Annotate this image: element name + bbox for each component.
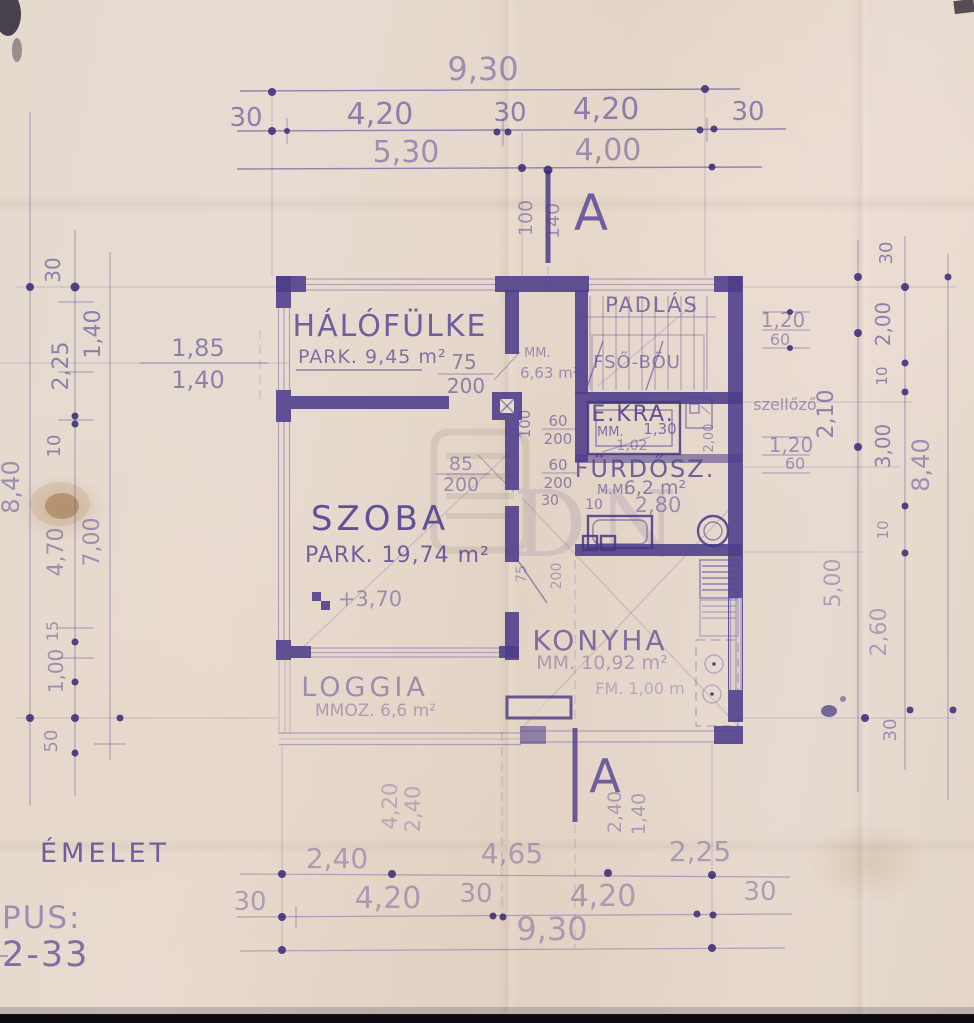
dim: 7,00 (80, 518, 105, 567)
dim: 2,25 (49, 342, 74, 391)
door-dim: 60 (548, 412, 567, 430)
section-top-dim-1: 100 (515, 200, 537, 236)
ekra-d2: 1,02 (616, 438, 647, 454)
top-dimension-chain: 9,30 30 4,20 30 4,20 30 5,30 4,00 (229, 50, 764, 170)
type-number: 2-33 (2, 935, 89, 975)
dim-30: 30 (541, 493, 559, 509)
dim: 30 (743, 877, 776, 907)
dim: 2,10 (814, 390, 839, 439)
water-heater (698, 516, 728, 546)
ekra-d1: 1,30 (643, 420, 676, 438)
door-dim: 85 (449, 453, 473, 475)
dim: 60 (770, 330, 790, 349)
scanned-floorplan-sheet: DN (0, 0, 974, 1023)
door-dim: 60 (548, 456, 567, 474)
ink-blot (821, 705, 837, 717)
dim: 4,70 (44, 528, 69, 577)
dim: 2,40 (401, 786, 425, 833)
dim: 30 (459, 879, 492, 909)
dim: 4,20 (570, 879, 637, 914)
dim: 2,40 (306, 842, 368, 875)
dim: 15 (43, 621, 62, 641)
section-mark-top: A 100 140 (515, 166, 610, 291)
hall-mm: MM. (524, 346, 551, 361)
dim: 2,60 (867, 608, 892, 657)
dimension-lines (26, 85, 957, 954)
szoba-level: +3,70 (338, 587, 402, 611)
dim-right-total: 8,40 (907, 438, 935, 491)
dim: 1,20 (761, 308, 806, 332)
dim: 4,00 (575, 133, 642, 168)
type-label: PUS: (2, 900, 82, 936)
dim: 5,30 (373, 135, 440, 170)
title-block: ÉMELET PUS: 2-33 (0, 837, 170, 975)
section-bottom-dim-2: 1,40 (628, 793, 650, 835)
room-halofulke-area: PARK. 9,45 m² (298, 346, 446, 368)
dim: 50 (41, 730, 62, 753)
room-szoba-area: PARK. 19,74 m² (305, 543, 490, 568)
furdo-d10: 10 (585, 497, 603, 513)
wall-dim-100: 100 (516, 410, 534, 439)
dim: 60 (785, 454, 805, 473)
bottom-dimension-chain: 2,40 4,65 2,25 30 4,20 30 4,20 30 9,30 4… (233, 783, 776, 948)
door-dim: 75 (451, 350, 476, 374)
door-dim: 75 (514, 565, 530, 583)
sheet-title: ÉMELET (40, 837, 170, 869)
extension-lines (0, 92, 956, 952)
dim: 2,00 (871, 302, 895, 347)
door-dim: 200 (447, 374, 485, 398)
vent-dim: 2,00 (702, 424, 717, 453)
dim: 10 (44, 435, 65, 458)
room-loggia-area: MMOZ. 6,6 m² (315, 701, 436, 721)
konyha-note: FM. 1,00 m (595, 679, 684, 698)
dim: 30 (229, 103, 262, 133)
room-halofulke: HÁLÓFÜLKE (293, 307, 488, 344)
furdo-width: 2,80 (635, 493, 682, 517)
padlas-note: FSŐ-BÖU (593, 351, 681, 373)
door-dim: 200 (544, 474, 573, 492)
hall-area: 6,63 m² (520, 364, 579, 382)
door-dim: 200 (443, 474, 479, 496)
room-padlas: PADLÁS (605, 292, 699, 317)
dim: 1,40 (171, 366, 224, 394)
level-mark (312, 592, 330, 610)
section-bottom-dim-1: 2,40 (604, 791, 626, 833)
dim: 30 (41, 257, 65, 282)
dim-bottom-total: 9,30 (516, 910, 587, 948)
dim: 4,20 (347, 97, 414, 132)
dim: 30 (876, 242, 897, 265)
dim: 30 (233, 887, 266, 917)
door-dim: 200 (544, 430, 573, 448)
right-dimension-chain: 1,20 60 2,10 1,20 60 5,00 30 2,00 10 3,0… (761, 242, 935, 742)
dim: 4,20 (355, 881, 422, 916)
dim: 30 (880, 719, 901, 742)
dim: 2,25 (669, 835, 731, 868)
dim: 1,00 (44, 649, 68, 694)
dim-left-total: 8,40 (0, 460, 25, 513)
section-top-dim-2: 140 (542, 203, 564, 239)
dim: 10 (874, 520, 892, 539)
dim: 4,20 (378, 783, 402, 830)
dim-top-total: 9,30 (447, 50, 518, 88)
dim: 4,65 (481, 837, 543, 870)
dim: 10 (873, 366, 891, 385)
dim: 5,00 (821, 559, 846, 608)
room-szoba: SZOBA (311, 499, 449, 539)
threshold (507, 697, 571, 718)
section-letter-top: A (574, 184, 610, 242)
floorplan-drawing: DN (0, 0, 974, 1023)
vent-label: szellőző (753, 395, 816, 414)
dim: 1,85 (171, 334, 224, 362)
dim: 3,00 (871, 424, 895, 469)
room-konyha-area: MM. 10,92 m² (536, 652, 667, 674)
room-loggia: LOGGIA (301, 672, 429, 703)
dim: 30 (731, 97, 764, 127)
dim: 4,20 (573, 92, 640, 127)
dim: 1,40 (81, 310, 106, 359)
door-dim: 200 (549, 563, 565, 590)
dim: 30 (493, 98, 526, 128)
